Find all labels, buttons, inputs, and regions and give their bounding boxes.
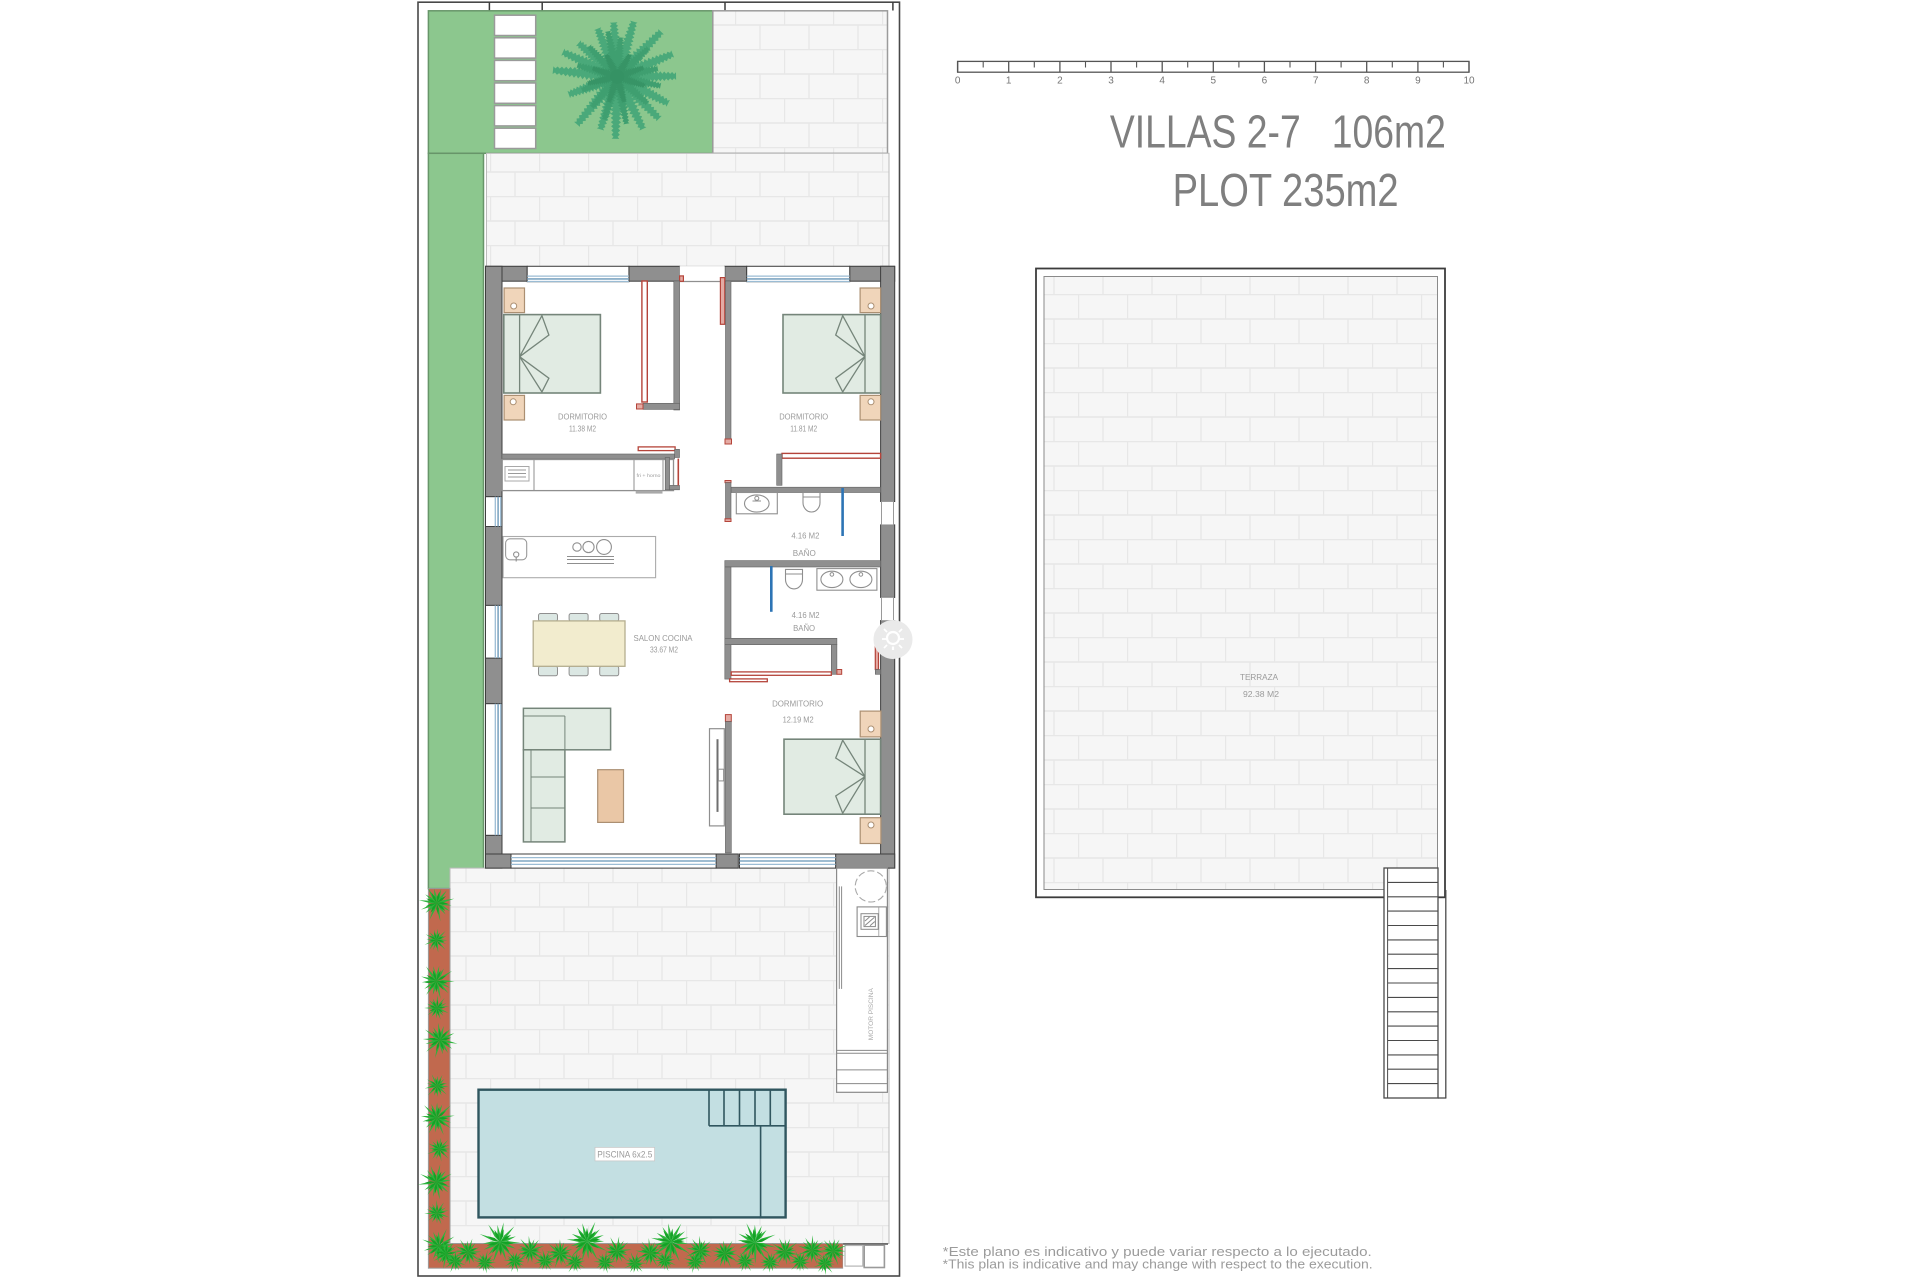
svg-text:33.67 M2: 33.67 M2 (650, 646, 678, 655)
svg-text:92.38 M2: 92.38 M2 (1243, 690, 1279, 699)
svg-text:11.38 M2: 11.38 M2 (569, 424, 596, 433)
svg-text:BAÑO: BAÑO (793, 624, 815, 633)
svg-text:fri + horno: fri + horno (637, 473, 662, 478)
svg-text:4.16 M2: 4.16 M2 (792, 611, 820, 620)
svg-text:2: 2 (1057, 76, 1063, 87)
svg-text:1: 1 (1006, 76, 1012, 87)
svg-text:4: 4 (1159, 76, 1165, 87)
svg-text:PLOT 235m2: PLOT 235m2 (1173, 164, 1399, 216)
svg-text:3: 3 (1108, 76, 1114, 87)
svg-text:PISCINA 6x2.5: PISCINA 6x2.5 (597, 1150, 652, 1160)
svg-text:DORMITORIO: DORMITORIO (772, 699, 823, 708)
svg-text:DORMITORIO: DORMITORIO (779, 413, 828, 422)
svg-text:5: 5 (1211, 76, 1217, 87)
svg-text:10: 10 (1463, 76, 1475, 87)
svg-text:DORMITORIO: DORMITORIO (558, 413, 607, 422)
svg-text:11.81 M2: 11.81 M2 (790, 424, 817, 433)
svg-text:7: 7 (1313, 76, 1319, 87)
svg-text:8: 8 (1364, 76, 1370, 87)
svg-text:SALON COCINA: SALON COCINA (634, 634, 694, 643)
svg-text:0: 0 (955, 76, 961, 87)
svg-text:6: 6 (1262, 76, 1268, 87)
svg-text:VILLAS 2-7 106m2: VILLAS 2-7 106m2 (1110, 106, 1446, 158)
svg-text:BAÑO: BAÑO (793, 549, 816, 558)
svg-text:TERRAZA: TERRAZA (1240, 673, 1279, 682)
svg-text:9: 9 (1415, 76, 1421, 87)
svg-text:*This plan is indicative and m: *This plan is indicative and may change … (943, 1256, 1373, 1271)
svg-text:12.19 M2: 12.19 M2 (783, 715, 814, 724)
svg-text:MOTOR PISCINA: MOTOR PISCINA (868, 988, 875, 1041)
svg-text:4.16 M2: 4.16 M2 (791, 531, 819, 540)
